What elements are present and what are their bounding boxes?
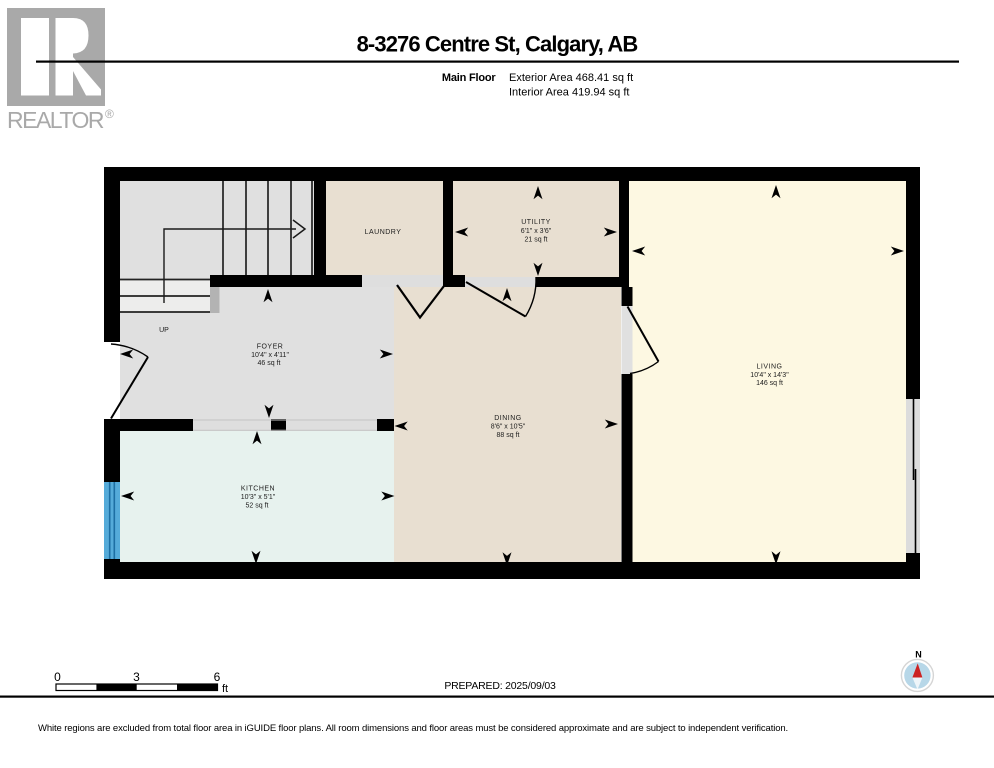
svg-text:46 sq ft: 46 sq ft [258,360,281,367]
svg-text:6: 6 [214,670,221,684]
svg-text:Main Floor: Main Floor [442,72,497,84]
svg-text:Exterior Area 468.41 sq ft: Exterior Area 468.41 sq ft [509,72,633,84]
svg-text:10'4" x 14'3": 10'4" x 14'3" [750,372,789,379]
svg-text:FOYER: FOYER [257,344,284,351]
svg-text:10'3" x 5'1": 10'3" x 5'1" [241,494,276,501]
svg-text:52 sq ft: 52 sq ft [246,503,269,510]
svg-text:KITCHEN: KITCHEN [241,486,275,493]
svg-text:3: 3 [133,670,140,684]
svg-text:Interior Area 419.94 sq ft: Interior Area 419.94 sq ft [509,87,629,99]
svg-text:LIVING: LIVING [757,364,783,371]
svg-text:8-3276 Centre St, Calgary, AB: 8-3276 Centre St, Calgary, AB [357,32,638,57]
svg-text:8'6" x 10'5": 8'6" x 10'5" [491,424,526,431]
svg-text:DINING: DINING [494,415,522,422]
svg-text:88 sq ft: 88 sq ft [497,432,520,439]
svg-text:®: ® [105,107,114,121]
svg-text:ft: ft [222,683,228,695]
svg-text:N: N [915,650,922,660]
svg-text:White regions are excluded fro: White regions are excluded from total fl… [38,723,788,734]
svg-text:6'1" x 3'6": 6'1" x 3'6" [521,228,552,235]
svg-text:UTILITY: UTILITY [521,219,551,226]
svg-text:UP: UP [159,327,169,334]
svg-text:21 sq ft: 21 sq ft [525,237,548,244]
svg-text:LAUNDRY: LAUNDRY [365,229,402,236]
svg-text:REALTOR: REALTOR [7,107,104,133]
svg-text:146 sq ft: 146 sq ft [756,380,783,387]
svg-text:PREPARED: 2025/09/03: PREPARED: 2025/09/03 [444,680,556,692]
svg-text:0: 0 [54,670,61,684]
svg-text:10'4" x 4'11": 10'4" x 4'11" [251,352,289,359]
